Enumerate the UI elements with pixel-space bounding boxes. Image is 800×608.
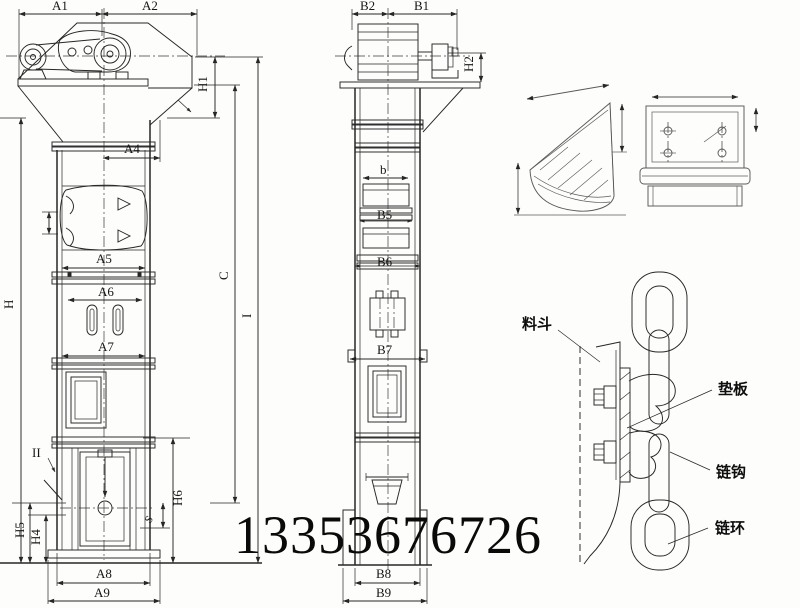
dim-label-b8: B8 <box>376 566 391 581</box>
dim-label-i: I <box>239 314 254 318</box>
dim-label-h1: H1 <box>195 76 210 92</box>
front-view <box>0 8 263 604</box>
chain-detail-labels: 料斗 垫板 链钩 链环 <box>522 315 749 537</box>
drawing-canvas: A1 A2 H1 A4 A5 A6 A7 H C I II H5 H4 H6 S… <box>0 0 800 608</box>
dim-label-h5: H5 <box>12 522 27 538</box>
chain-mount-detail <box>558 272 712 570</box>
dim-label-a5: A5 <box>96 251 112 266</box>
label-chain-hook: 链钩 <box>716 463 746 481</box>
dim-label-h6: H6 <box>170 490 185 506</box>
dim-label-b7: B7 <box>377 342 393 357</box>
bucket-side-detail <box>514 85 627 215</box>
dim-label-h: H <box>1 300 16 309</box>
dim-label-h2: H2 <box>461 56 476 72</box>
label-bucket: 料斗 <box>522 315 552 333</box>
bolt-lower <box>594 441 616 463</box>
label-chain-ring: 链环 <box>715 519 745 537</box>
dim-label-b: b <box>380 162 387 177</box>
dim-label-a7: A7 <box>98 339 114 354</box>
label-pad-plate: 垫板 <box>718 380 749 398</box>
bolt-upper <box>594 386 616 408</box>
watermark-phone-number: 13353676726 <box>234 505 542 565</box>
bucket-front-detail <box>640 97 756 206</box>
dim-label-c: C <box>216 271 231 280</box>
section-marker-ii: II <box>32 445 41 460</box>
dim-label-a9: A9 <box>94 585 110 600</box>
dim-label-a8: A8 <box>96 566 112 581</box>
dim-label-a6: A6 <box>98 284 114 299</box>
dim-label-a1: A1 <box>52 0 68 13</box>
dim-label-b6: B6 <box>377 254 393 269</box>
dim-label-h4: H4 <box>28 529 43 545</box>
engineering-drawing: A1 A2 H1 A4 A5 A6 A7 H C I II H5 H4 H6 S… <box>0 0 800 608</box>
dim-label-b1: B1 <box>414 0 429 13</box>
dim-label-b9: B9 <box>376 585 391 600</box>
dim-label-a4: A4 <box>124 141 140 156</box>
dim-label-a2: A2 <box>142 0 158 13</box>
dim-label-b2: B2 <box>360 0 375 13</box>
dim-label-b5: B5 <box>377 207 392 222</box>
